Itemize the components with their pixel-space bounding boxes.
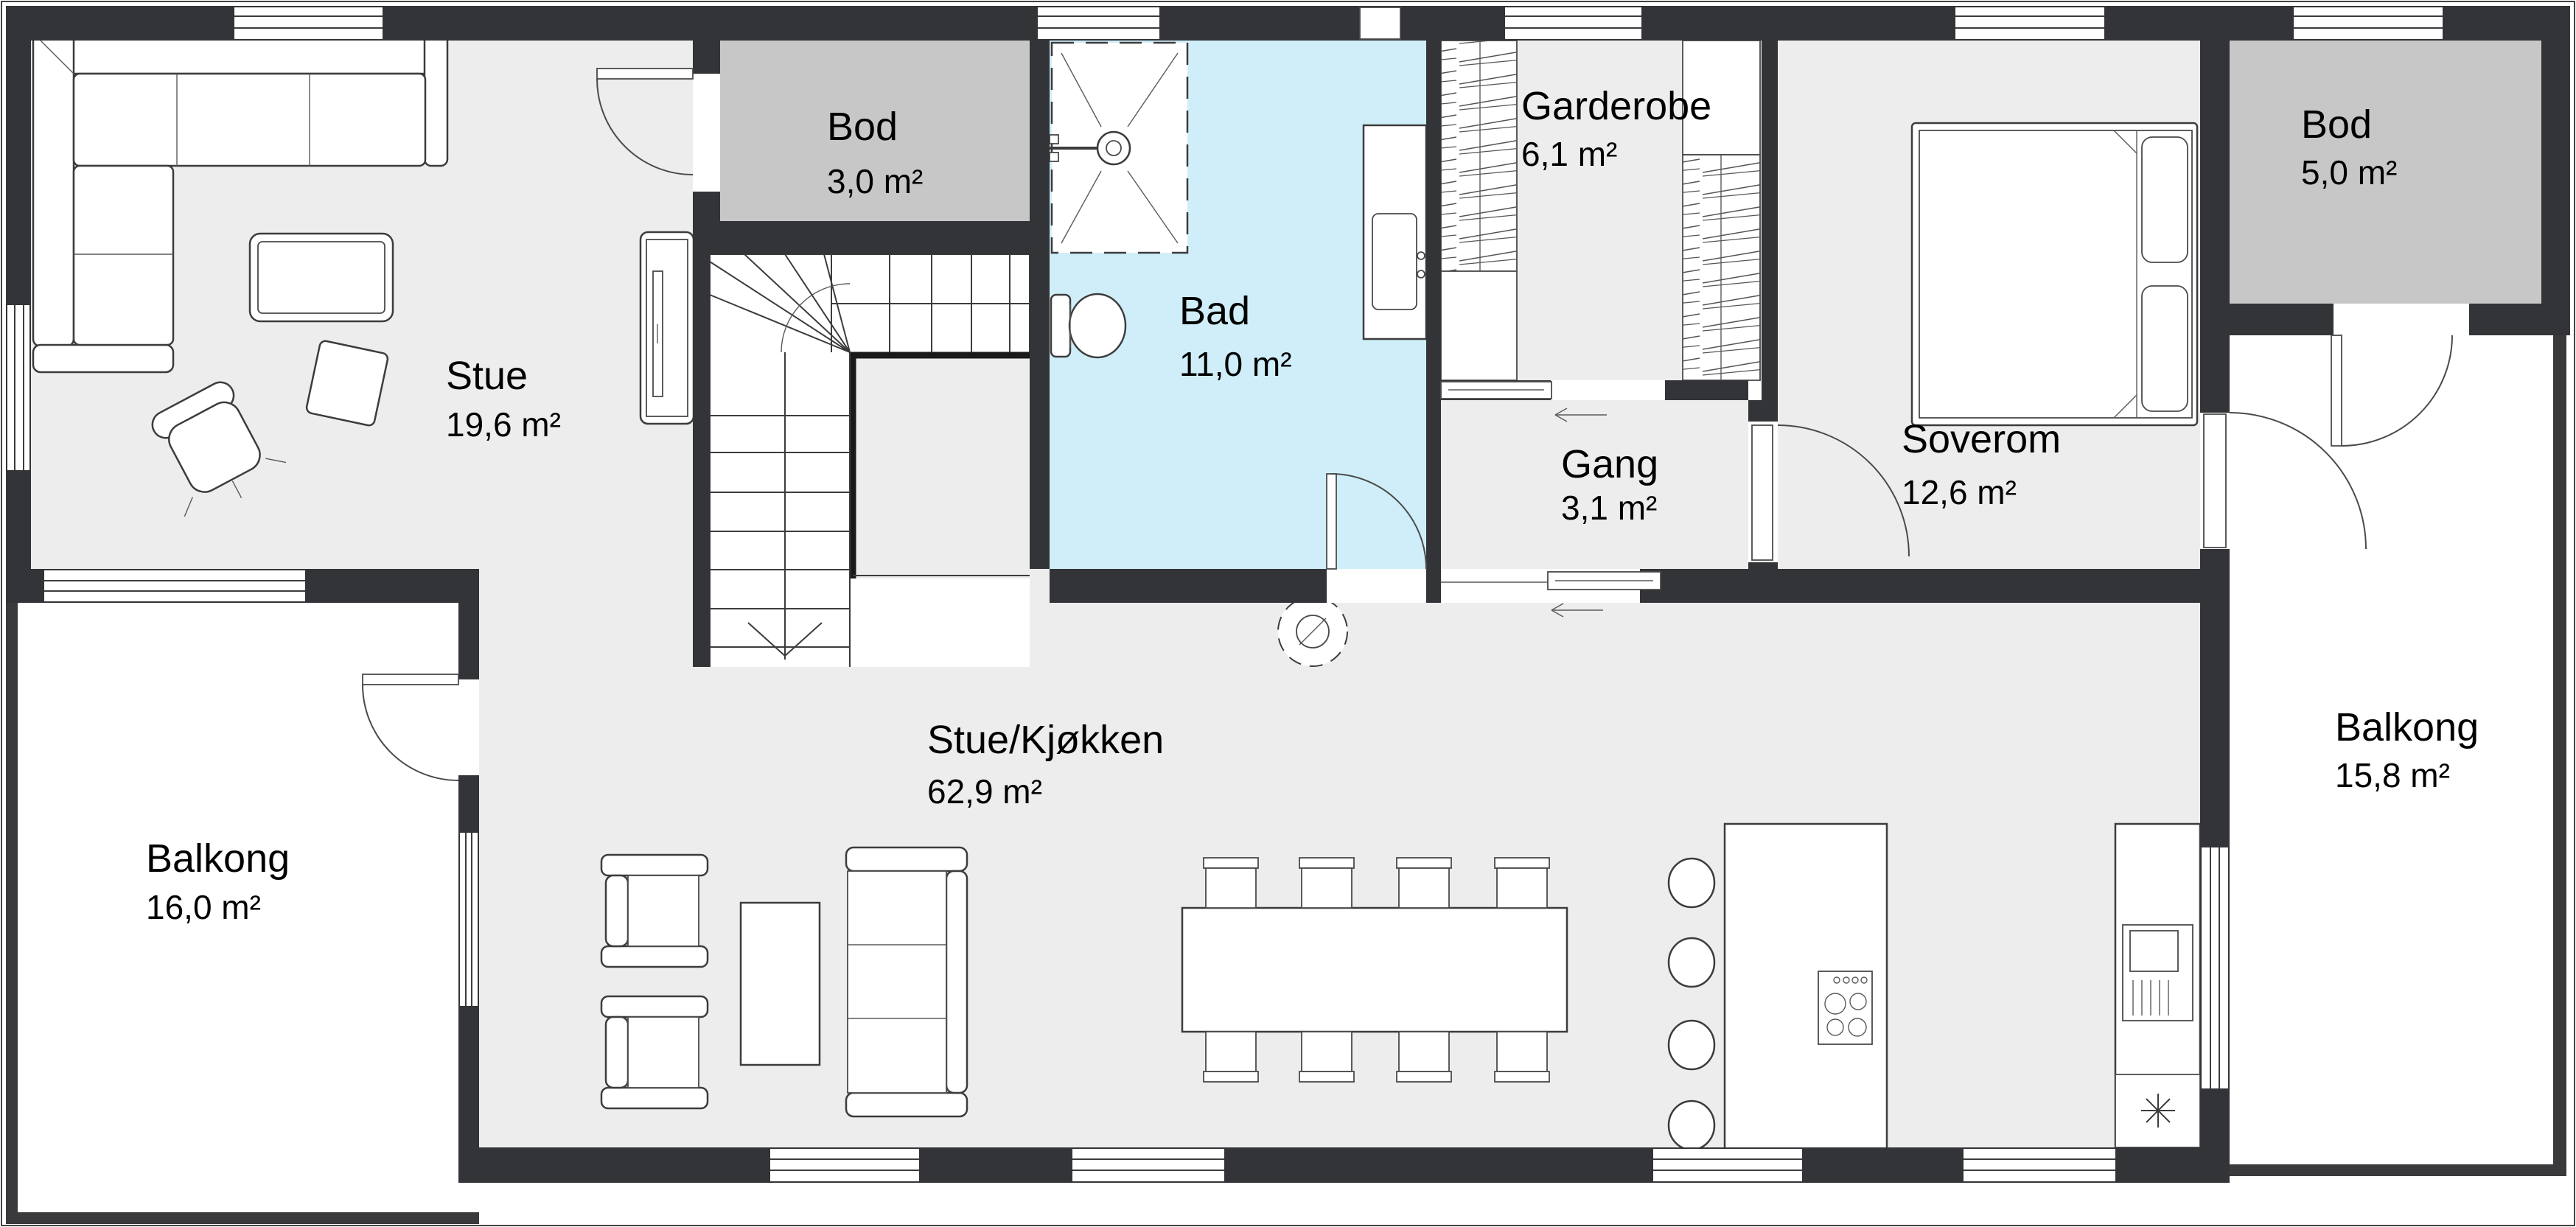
bed	[1912, 123, 2197, 425]
wall-stair-west	[693, 254, 710, 667]
cooktop	[1818, 971, 1872, 1044]
shower-valve	[1050, 135, 1058, 144]
railing-balcony-right	[2553, 335, 2566, 1176]
garderobe-label: Garderobe	[1521, 84, 1711, 128]
window	[44, 570, 305, 601]
bar-stool	[1669, 1101, 1714, 1150]
vanity	[1364, 125, 1426, 339]
bod-right-area: 5,0 m²	[2301, 153, 2397, 192]
garderobe-area: 6,1 m²	[1521, 135, 1617, 173]
vent-box	[1360, 7, 1400, 39]
vanity-basin	[1372, 214, 1417, 310]
wall-annex-east	[2541, 6, 2570, 335]
chimney	[1278, 597, 1347, 666]
soverom-label: Soverom	[1902, 417, 2061, 461]
stue-kjokken-label: Stue/Kjøkken	[927, 718, 1164, 762]
bad-label: Bad	[1179, 289, 1250, 333]
shower	[1050, 43, 1187, 253]
dining-chair	[1299, 858, 1354, 908]
toilet	[1051, 294, 1125, 357]
sofa-back-left	[33, 33, 74, 346]
window	[460, 833, 478, 1006]
dining-chair	[1204, 858, 1258, 908]
dining-table	[1182, 908, 1567, 1032]
bad-area: 11,0 m²	[1179, 345, 1292, 383]
gang-label: Gang	[1561, 442, 1658, 486]
sofa-seats-top	[74, 74, 425, 166]
wardrobe-left-hatch	[1441, 41, 1517, 271]
balkong-right-area: 15,8 m²	[2335, 756, 2450, 794]
bod-right-label: Bod	[2301, 102, 2372, 147]
window	[1072, 1149, 1224, 1181]
wall-bad-garderobe	[1426, 41, 1441, 569]
wall-stair-bad	[1030, 41, 1050, 569]
wall-exterior-top	[6, 6, 2570, 41]
bar-stool	[1669, 1021, 1714, 1069]
window	[770, 1149, 919, 1181]
tv-bench	[640, 232, 694, 424]
shower-head-center	[1106, 141, 1121, 155]
window	[1964, 1149, 2115, 1181]
dishwasher	[2123, 925, 2193, 1021]
vanity-knob	[1417, 252, 1425, 259]
armchair	[601, 996, 708, 1108]
coffee-table-inner	[258, 242, 385, 313]
sofa-armrest-bottom	[33, 345, 173, 372]
window	[1038, 7, 1159, 39]
cabinet-left	[1441, 271, 1517, 380]
bod-top-label: Bod	[827, 105, 898, 149]
freezer	[2115, 1074, 2200, 1147]
balkong-left-area: 16,0 m²	[146, 888, 261, 926]
window	[1955, 7, 2104, 39]
armchair	[601, 855, 708, 967]
wall-garderobe-soverom	[1762, 6, 1778, 400]
wall-soverom-bottom	[1778, 569, 2200, 603]
gang-area: 3,1 m²	[1561, 489, 1657, 527]
railing-balcony-left-bottom	[6, 1212, 479, 1224]
dining-chair	[1397, 858, 1451, 908]
ottoman-seat	[306, 340, 389, 426]
sofa	[846, 847, 967, 1116]
railing-balcony-right-bottom	[2230, 1164, 2566, 1176]
balkong-right-label: Balkong	[2335, 705, 2479, 749]
side-table	[741, 903, 820, 1065]
dining-chair	[1204, 1032, 1258, 1082]
stair-landing	[850, 352, 1030, 578]
bar-stool	[1669, 938, 1714, 987]
stue-label: Stue	[446, 354, 528, 398]
coffee-table	[250, 234, 393, 321]
toilet-bowl	[1069, 294, 1125, 357]
dining-chair	[1299, 1032, 1354, 1082]
balkong-left-label: Balkong	[146, 836, 290, 881]
soverom-area: 12,6 m²	[1902, 473, 2017, 511]
dining-chair	[1397, 1032, 1451, 1082]
shower-valve	[1050, 153, 1058, 161]
bed-pillow	[2142, 137, 2188, 262]
window	[2202, 847, 2228, 1088]
window	[1653, 1149, 1802, 1181]
window	[7, 305, 29, 470]
stue-area: 19,6 m²	[446, 405, 561, 444]
window	[234, 7, 383, 39]
window	[2294, 7, 2443, 39]
bod-top-area: 3,0 m²	[827, 162, 923, 200]
dining-chair	[1495, 858, 1549, 908]
floor-plan: Stue 19,6 m² Bod 3,0 m² Bad 11,0 m² Gard…	[0, 0, 2576, 1227]
wall-bod-bottom	[693, 221, 1030, 254]
sofa-armrest-right	[425, 33, 447, 166]
sofa-seats-left	[74, 166, 173, 345]
stue-kjokken-area: 62,9 m²	[927, 772, 1042, 811]
vanity-knob	[1417, 270, 1425, 278]
bar-stool	[1669, 859, 1714, 907]
ottoman	[306, 340, 389, 426]
railing-balcony-left	[6, 603, 18, 1224]
toilet-tank	[1051, 295, 1070, 357]
dining-chair	[1495, 1032, 1549, 1082]
wall-exterior-left	[6, 6, 31, 603]
window	[1505, 7, 1641, 39]
bed-pillow	[2142, 286, 2188, 411]
